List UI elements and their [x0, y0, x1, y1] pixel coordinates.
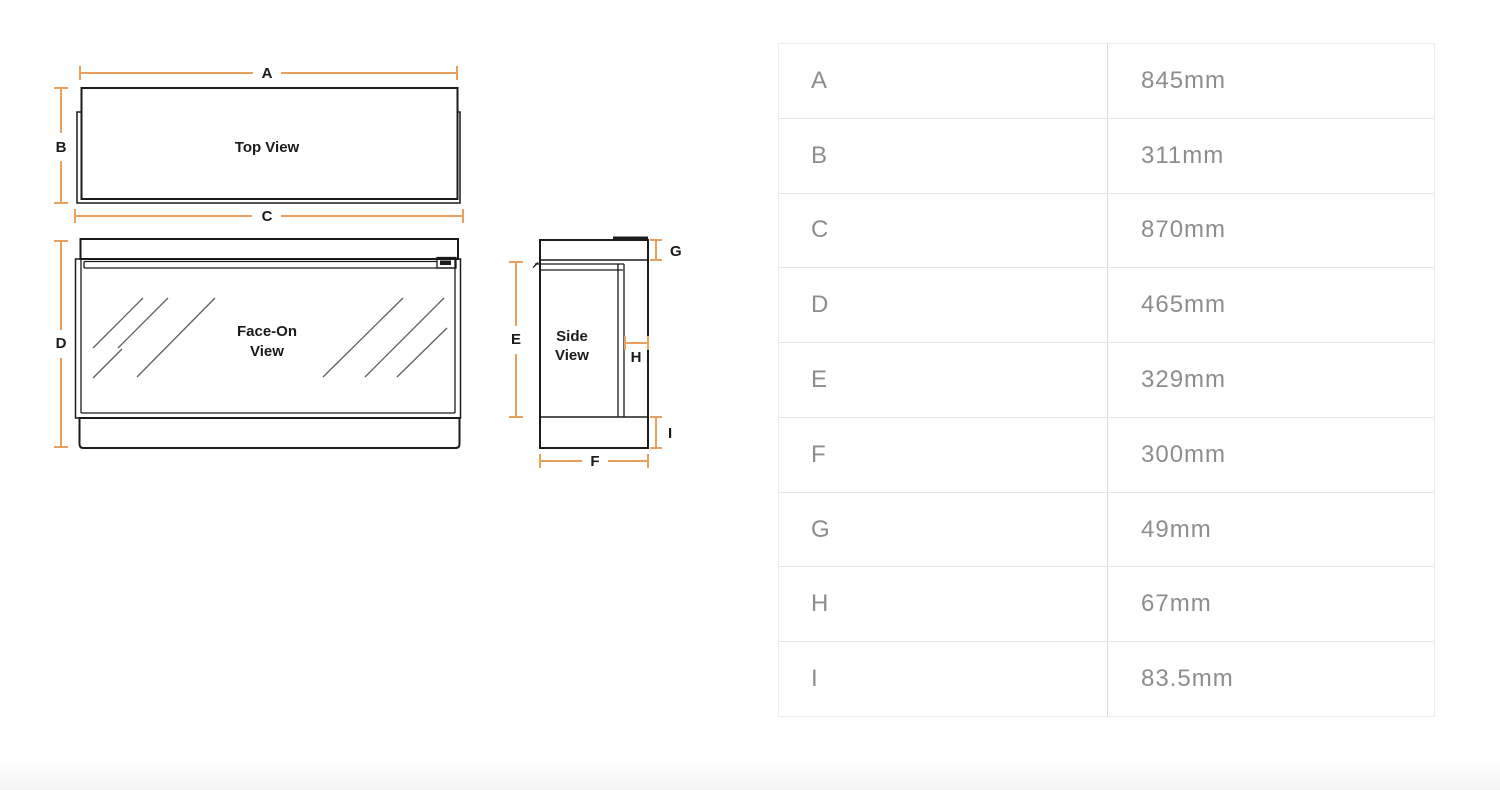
face-on-view: Face-On View	[76, 239, 461, 448]
top-view: Top View	[77, 88, 460, 203]
dimension-spec-table: A 845mm B 311mm C 870mm D 465mm E 329mm …	[778, 43, 1435, 717]
side-view-title-line1: Side	[556, 328, 588, 345]
dimension-diagram: Top View A B C	[0, 0, 740, 500]
table-row: C 870mm	[779, 193, 1434, 268]
side-view-title-line2: View	[555, 347, 589, 364]
dimension-b: B	[54, 88, 68, 203]
dim-label-cell: E	[779, 343, 1108, 417]
dimension-d-label: D	[56, 335, 67, 352]
face-on-view-title-line2: View	[250, 343, 284, 360]
dim-value-cell: 300mm	[1108, 418, 1434, 492]
table-row: F 300mm	[779, 417, 1434, 492]
dim-label-cell: G	[779, 493, 1108, 567]
dim-label-cell: H	[779, 567, 1108, 641]
dimension-g: G	[650, 240, 682, 260]
dim-label-cell: C	[779, 194, 1108, 268]
control-box-switch	[440, 261, 451, 266]
page: Top View A B C	[0, 0, 1500, 790]
dim-value-cell: 465mm	[1108, 268, 1434, 342]
dimension-e: E	[509, 262, 523, 417]
dim-value-cell: 83.5mm	[1108, 642, 1434, 716]
table-row: H 67mm	[779, 566, 1434, 641]
top-view-title: Top View	[235, 139, 300, 156]
table-row: A 845mm	[779, 44, 1434, 118]
dimension-f: F	[540, 453, 648, 470]
table-row: I 83.5mm	[779, 641, 1434, 716]
dimension-a-label: A	[262, 65, 273, 82]
dimension-e-label: E	[511, 331, 521, 348]
dim-value-cell: 845mm	[1108, 44, 1434, 118]
table-row: E 329mm	[779, 342, 1434, 417]
page-bottom-fade	[0, 762, 1500, 790]
dim-value-cell: 870mm	[1108, 194, 1434, 268]
dimension-d: D	[54, 241, 68, 447]
dimension-f-label: F	[590, 453, 599, 470]
face-on-top-band	[81, 239, 459, 259]
dimension-c-label: C	[262, 208, 273, 225]
table-row: B 311mm	[779, 118, 1434, 193]
dimension-i-label: I	[668, 425, 672, 442]
dim-label-cell: F	[779, 418, 1108, 492]
dim-label-cell: B	[779, 119, 1108, 193]
dim-value-cell: 67mm	[1108, 567, 1434, 641]
dimension-g-label: G	[670, 243, 682, 260]
face-on-view-title-line1: Face-On	[237, 323, 297, 340]
dimension-i: I	[650, 417, 672, 448]
dimension-c: C	[75, 208, 463, 225]
side-view-corner-tick	[533, 263, 538, 268]
dimension-b-label: B	[56, 139, 67, 156]
dim-label-cell: D	[779, 268, 1108, 342]
face-on-plinth	[80, 418, 460, 448]
dim-value-cell: 49mm	[1108, 493, 1434, 567]
table-row: D 465mm	[779, 267, 1434, 342]
table-row: G 49mm	[779, 492, 1434, 567]
dim-value-cell: 311mm	[1108, 119, 1434, 193]
dimension-a: A	[80, 65, 457, 82]
dim-label-cell: I	[779, 642, 1108, 716]
dim-label-cell: A	[779, 44, 1108, 118]
dim-value-cell: 329mm	[1108, 343, 1434, 417]
dimension-h-label: H	[631, 349, 642, 366]
